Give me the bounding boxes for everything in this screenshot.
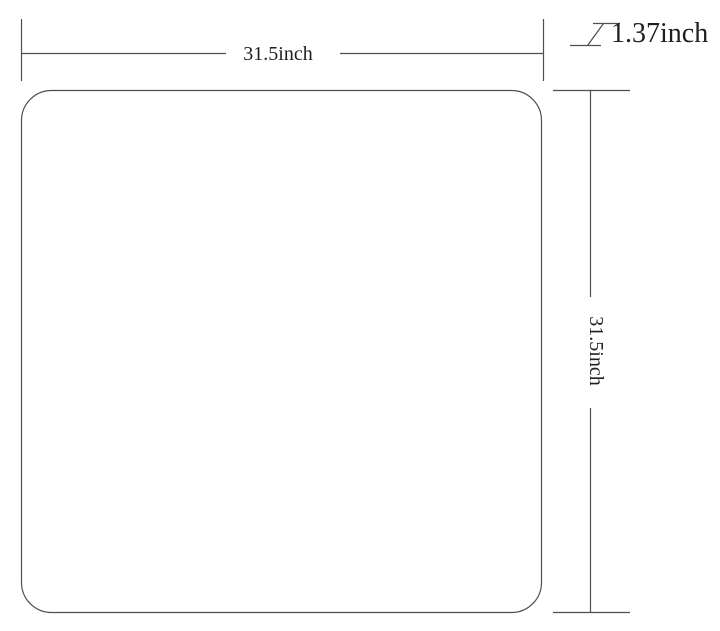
- diagram-lines: [0, 0, 720, 631]
- thickness-dimension-label: 1.37inch: [611, 19, 708, 49]
- height-dimension-label: 31.5inch: [584, 281, 608, 421]
- thickness-symbol-diagonal: [588, 24, 604, 46]
- panel-outline: [22, 91, 542, 613]
- width-dimension-label: 31.5inch: [208, 42, 348, 66]
- dimension-diagram: 31.5inch 31.5inch 1.37inch: [0, 0, 720, 631]
- diagram-line-group: [22, 19, 631, 613]
